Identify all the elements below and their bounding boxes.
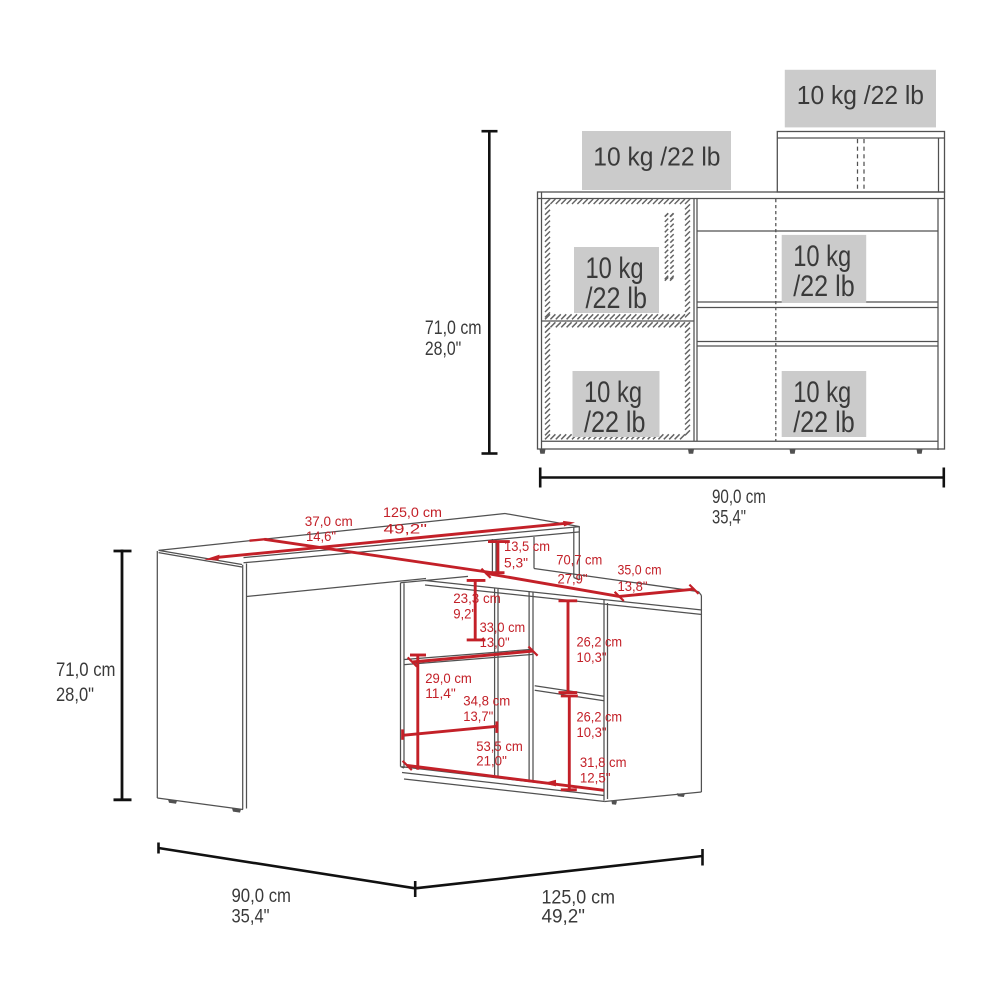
svg-text:10 kg /22 lb: 10 kg /22 lb [593, 144, 720, 172]
svg-text:35,4": 35,4" [232, 906, 270, 927]
svg-text:26,2 cm: 26,2 cm [577, 633, 623, 649]
svg-text:10,3": 10,3" [577, 649, 607, 665]
svg-text:10,3": 10,3" [577, 724, 607, 740]
svg-text:10 kg: 10 kg [793, 240, 851, 273]
svg-text:37,0 cm: 37,0 cm [305, 513, 353, 529]
svg-text:23,3 cm: 23,3 cm [453, 590, 501, 606]
svg-text:28,0": 28,0" [56, 685, 94, 706]
svg-text:49,2": 49,2" [542, 907, 586, 928]
svg-text:/22 lb: /22 lb [586, 282, 648, 315]
svg-text:13,8": 13,8" [618, 578, 648, 594]
svg-text:125,0 cm: 125,0 cm [542, 888, 616, 909]
svg-text:28,0": 28,0" [425, 339, 461, 360]
svg-text:49,2": 49,2" [384, 521, 428, 537]
svg-text:29,0 cm: 29,0 cm [425, 670, 472, 686]
svg-text:/22 lb: /22 lb [584, 406, 646, 439]
svg-text:10 kg /22 lb: 10 kg /22 lb [797, 82, 924, 110]
svg-text:10 kg: 10 kg [793, 376, 851, 409]
svg-text:10 kg: 10 kg [584, 376, 642, 409]
svg-text:33,0 cm: 33,0 cm [480, 619, 526, 635]
svg-text:35,4": 35,4" [712, 507, 746, 528]
svg-text:71,0 cm: 71,0 cm [425, 318, 482, 339]
svg-text:34,8 cm: 34,8 cm [463, 693, 510, 709]
svg-text:70,7 cm: 70,7 cm [556, 552, 602, 568]
svg-text:9,2": 9,2" [453, 606, 476, 622]
svg-text:31,8 cm: 31,8 cm [580, 754, 627, 770]
svg-text:27,9": 27,9" [558, 571, 588, 587]
svg-text:21,0": 21,0" [476, 753, 507, 769]
svg-text:13,0": 13,0" [480, 634, 510, 650]
svg-text:53,5 cm: 53,5 cm [476, 738, 523, 754]
svg-text:5,3": 5,3" [504, 555, 528, 571]
svg-text:13,5 cm: 13,5 cm [504, 538, 550, 554]
svg-text:35,0 cm: 35,0 cm [618, 562, 662, 578]
svg-text:10 kg: 10 kg [586, 252, 644, 285]
svg-text:26,2 cm: 26,2 cm [577, 709, 623, 725]
svg-text:/22 lb: /22 lb [793, 406, 855, 439]
svg-text:90,0 cm: 90,0 cm [232, 886, 292, 907]
svg-text:90,0 cm: 90,0 cm [712, 487, 766, 508]
svg-text:125,0 cm: 125,0 cm [383, 504, 442, 520]
svg-text:14,6": 14,6" [306, 528, 336, 544]
svg-text:11,4": 11,4" [425, 685, 456, 701]
svg-text:13,7": 13,7" [463, 708, 493, 724]
svg-text:12,5": 12,5" [580, 770, 611, 786]
svg-text:71,0 cm: 71,0 cm [56, 660, 116, 681]
svg-text:/22 lb: /22 lb [793, 270, 855, 303]
